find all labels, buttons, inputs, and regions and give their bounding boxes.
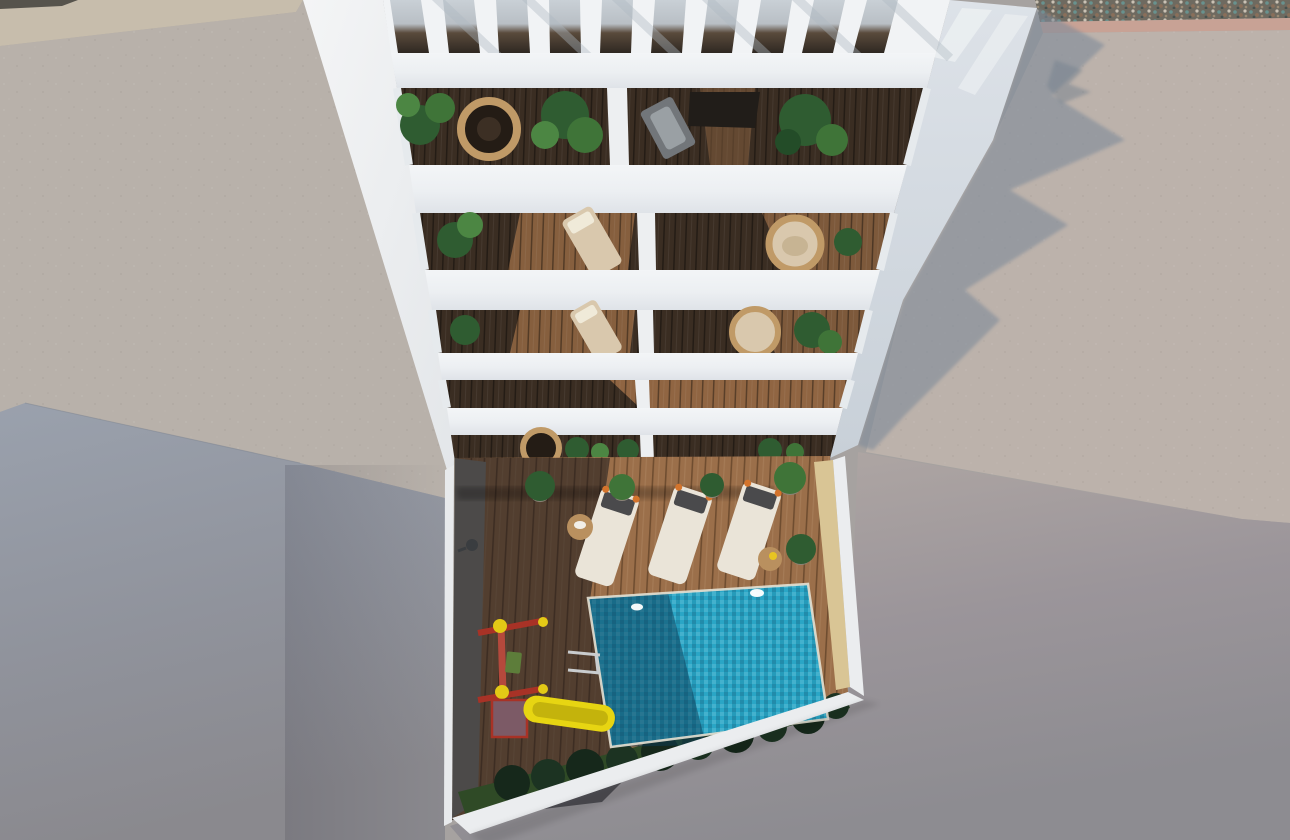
frame-cap <box>538 684 548 694</box>
slide-platform <box>492 700 527 737</box>
frame-cap <box>495 685 509 699</box>
papasan-chair <box>769 218 821 270</box>
render-image <box>0 0 1290 840</box>
slab <box>438 353 858 380</box>
side-table <box>758 547 782 571</box>
slab <box>409 165 907 213</box>
unit-divider-wall <box>635 380 650 408</box>
underwater-light <box>631 604 643 611</box>
underwater-light <box>750 589 764 597</box>
frame-cap <box>538 617 548 627</box>
dark-cabinet <box>688 92 760 128</box>
balcony-side-rail <box>442 380 447 408</box>
fern-plant <box>834 228 862 256</box>
swing-seat <box>505 651 522 673</box>
scene-canvas <box>0 0 1290 840</box>
pergola-gap <box>496 0 530 53</box>
potted-plant <box>450 315 480 345</box>
unit-divider-wall <box>637 310 654 353</box>
slab <box>447 408 843 435</box>
slab <box>425 270 880 310</box>
pergola <box>383 0 950 88</box>
side-table <box>567 514 593 540</box>
unit-divider-wall <box>637 213 656 270</box>
unit-divider-wall <box>607 88 629 165</box>
balcony-level-2 <box>416 205 894 279</box>
balcony-level-1 <box>396 88 927 165</box>
hanging-wicker-chair <box>461 101 517 157</box>
pergola-rail-slab <box>391 53 936 88</box>
papasan-chair <box>732 309 778 355</box>
sun-loungers <box>573 479 783 588</box>
soft-vertical-shadow <box>285 465 445 840</box>
balcony-level-4 <box>442 380 851 408</box>
frame-cap <box>493 619 507 633</box>
